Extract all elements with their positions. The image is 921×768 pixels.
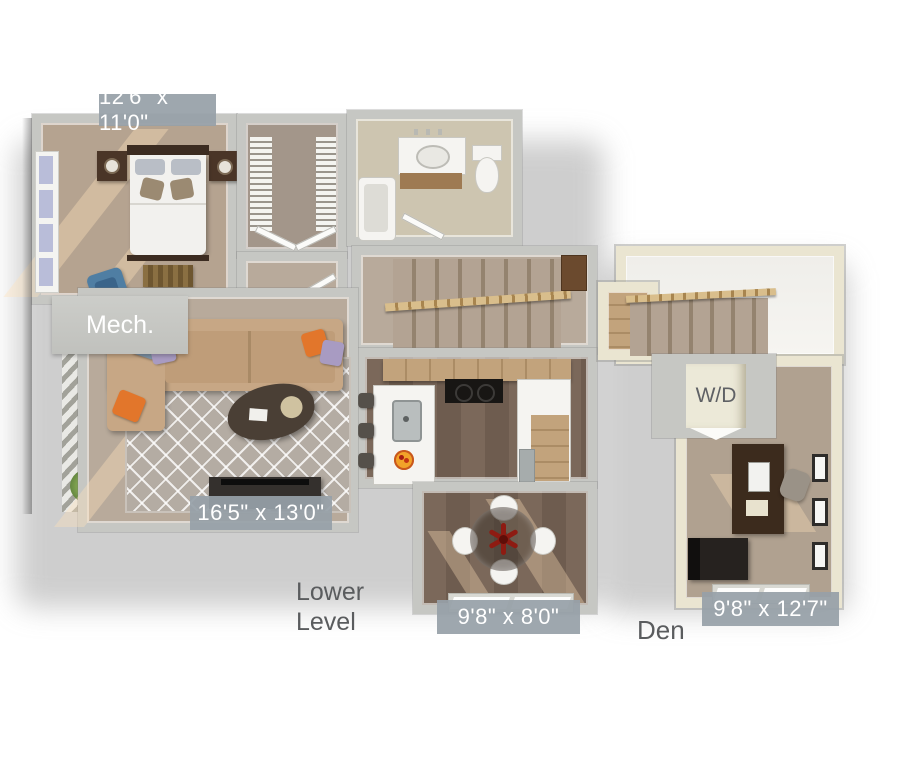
bedroom-window [35, 151, 59, 293]
television [221, 479, 309, 485]
bathtub [358, 177, 396, 241]
closet-shelf-left [250, 137, 272, 231]
table-tray [279, 395, 304, 420]
foot-bench [143, 265, 193, 287]
dishwasher [519, 449, 535, 483]
kitchen [356, 348, 597, 488]
throw-pillow-lavender [319, 339, 345, 366]
duvet-fold [130, 203, 206, 205]
flower-center [499, 535, 508, 544]
mech-room: Mech. [52, 296, 188, 354]
footboard [127, 255, 209, 261]
floorplan-canvas: Mech. W/D [0, 0, 921, 768]
laundry-closet: W/D [652, 354, 776, 438]
table-book [249, 408, 268, 421]
wall-frame [812, 454, 828, 482]
bed-pillow [171, 159, 201, 175]
dining-nook [413, 482, 597, 614]
kitchen-island [373, 385, 435, 485]
laptop [748, 462, 770, 492]
closet-door-swing [255, 226, 298, 252]
futon [688, 538, 748, 580]
desk [732, 444, 784, 534]
toilet [472, 145, 500, 195]
nightstand-right [209, 151, 239, 181]
nightstand-left [97, 151, 127, 181]
lower-level-line2: Level [296, 608, 364, 638]
front-door [561, 255, 587, 291]
living-dimension-text: 16'5" x 13'0" [197, 500, 324, 526]
fruit [404, 458, 409, 463]
vanity [398, 129, 464, 189]
bathroom [347, 110, 522, 246]
den-dimension-badge: 9'8" x 12'7" [702, 592, 839, 626]
accent-pillow [169, 177, 194, 201]
futon-arm [688, 538, 700, 580]
bed-pillow [135, 159, 165, 175]
closet-shelf-right [316, 137, 336, 231]
living-dimension-badge: 16'5" x 13'0" [190, 496, 332, 530]
den-caption-text: Den [637, 615, 685, 645]
washer-dryer-label: W/D [696, 384, 737, 408]
toilet-bowl [475, 157, 499, 193]
window-panes [39, 156, 53, 288]
lamp [217, 159, 233, 175]
entry-stairs [352, 246, 597, 354]
burner [477, 384, 495, 402]
dining-table [470, 507, 536, 571]
bedroom-dimension-text: 12'6" x 11'0" [99, 84, 216, 136]
bar-stool [358, 453, 374, 468]
wall-frame [812, 498, 828, 526]
tub-basin [364, 184, 388, 232]
stove-cooktop [445, 379, 503, 403]
vanity-counter [398, 137, 466, 175]
walk-in-closet [237, 114, 347, 258]
laundry-door-wedge [690, 428, 742, 440]
sink-drain [403, 416, 409, 422]
bed [127, 145, 209, 261]
bedroom-dimension-badge: 12'6" x 11'0" [99, 94, 216, 126]
flower-centerpiece [487, 523, 519, 555]
bar-stool [358, 393, 374, 408]
lamp [104, 158, 120, 174]
bathroom-door-swing [401, 213, 445, 241]
den-caption: Den [637, 615, 685, 646]
bedroom [32, 114, 237, 304]
washer-dryer-unit: W/D [686, 364, 746, 428]
headboard [127, 145, 209, 155]
wall-frame [812, 542, 828, 570]
den-dimension-text: 9'8" x 12'7" [713, 596, 827, 622]
den-staircase [630, 298, 768, 356]
dining-dimension-badge: 9'8" x 8'0" [437, 600, 580, 634]
desk-papers [746, 500, 768, 516]
bar-stool [358, 423, 374, 438]
kitchen-counter-right-wood [531, 415, 569, 481]
left-wall-shade [22, 118, 32, 514]
island-sink [392, 400, 422, 442]
sink-basin [416, 145, 450, 169]
lower-level-line1: Lower [296, 578, 364, 608]
fruit-bowl [394, 450, 414, 470]
dining-dimension-text: 9'8" x 8'0" [458, 604, 560, 630]
faucet-hardware [414, 129, 448, 135]
lower-level-caption: Lower Level [296, 578, 364, 637]
mech-label: Mech. [86, 311, 154, 340]
vanity-cabinet [400, 173, 462, 189]
kitchen-upper-cabinets [383, 359, 571, 381]
burner [455, 384, 473, 402]
